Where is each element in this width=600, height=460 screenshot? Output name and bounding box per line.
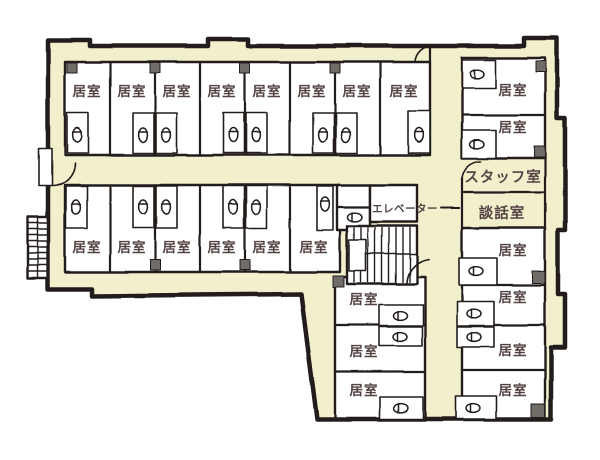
room-label: 居室: [73, 239, 102, 256]
wall-opening: [39, 148, 52, 186]
staff-room-label: スタッフ室: [464, 168, 542, 186]
room-label: 居室: [118, 239, 147, 256]
room-label: 居室: [499, 242, 528, 259]
room-label: 居室: [208, 239, 237, 256]
room-label: 居室: [499, 342, 528, 359]
room-label: 居室: [253, 83, 282, 100]
lounge-label: 談話室: [479, 204, 526, 222]
room-label: 居室: [298, 83, 327, 100]
floor-plan-canvas: 居室 居室 居室 居室 居室 居室 居室 居室 居室 居室 居室 居室 居室 居…: [0, 0, 600, 460]
elevator-label: エレベーター: [372, 203, 438, 215]
room-label: 居室: [300, 239, 329, 256]
stairs-icon: [347, 226, 417, 284]
room-label: 居室: [208, 83, 237, 100]
room-label: 居室: [390, 83, 419, 100]
floor-plan: 居室 居室 居室 居室 居室 居室 居室 居室 居室 居室 居室 居室 居室 居…: [0, 0, 600, 460]
room-block-second-row: [65, 185, 340, 272]
room-label: 居室: [499, 289, 528, 306]
room-label: 居室: [499, 82, 528, 99]
room-label: 居室: [118, 83, 147, 100]
room-label: 居室: [499, 119, 528, 136]
room-label: 居室: [350, 291, 379, 308]
room-label: 居室: [253, 239, 282, 256]
room-label: 居室: [350, 382, 379, 399]
room-label: 居室: [163, 239, 192, 256]
room-label: 居室: [499, 382, 528, 399]
room-label: 居室: [73, 83, 102, 100]
room-label: 居室: [163, 83, 192, 100]
room-label: 居室: [343, 83, 372, 100]
room-label: 居室: [350, 343, 379, 360]
stairs-icon: [28, 217, 48, 278]
